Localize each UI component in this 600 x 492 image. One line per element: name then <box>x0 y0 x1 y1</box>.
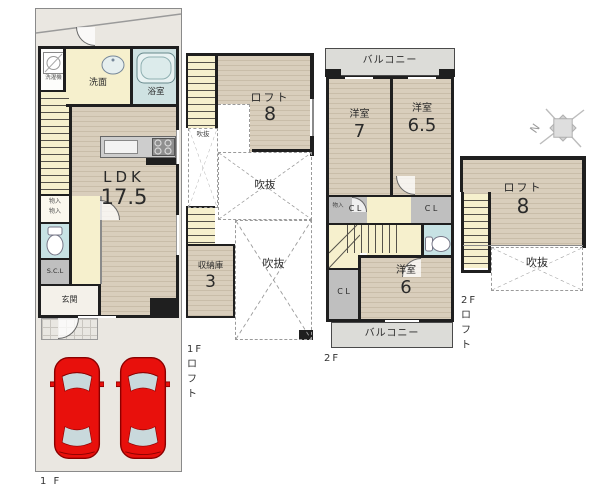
void-area <box>188 128 218 208</box>
window <box>408 77 436 79</box>
west6-size: 6 <box>361 279 451 298</box>
ldk-size: 17.5 <box>72 186 176 208</box>
plan-label-2f-loft: 2Fロフト <box>461 295 477 351</box>
storage-label: 収納庫 <box>188 262 233 271</box>
balcony-bottom-label: バルコニー <box>331 329 453 340</box>
kitchen-sink <box>104 140 138 154</box>
plan-label-2f: 2F <box>324 353 340 364</box>
storage-size: 3 <box>188 274 233 292</box>
wall <box>41 222 69 224</box>
plan-1f: 洗面 洗濯機 浴室 LDK 17.5 物入 物入 S.C.L 玄関 1 F <box>0 0 200 492</box>
west7-size: 7 <box>329 123 390 142</box>
ldk-label: LDK <box>72 170 176 186</box>
toilet-icon <box>425 234 451 254</box>
bathtub-icon <box>136 52 176 84</box>
washer-label: 洗濯機 <box>41 76 66 82</box>
loft1-label: ロフト <box>230 92 310 104</box>
void-label: 吹抜 <box>491 257 583 269</box>
sink-icon <box>100 54 127 76</box>
window <box>345 77 373 79</box>
wall <box>186 316 235 318</box>
west65-size: 6.5 <box>393 117 451 136</box>
wall <box>329 195 451 197</box>
wall <box>186 244 233 246</box>
bath-label: 浴室 <box>133 88 179 97</box>
hall-1f <box>72 196 100 284</box>
wall <box>98 284 101 318</box>
wall <box>361 255 451 258</box>
loft2-size: 8 <box>463 196 583 217</box>
balcony-top-label: バルコニー <box>325 56 455 67</box>
void-label: 吹抜 <box>188 131 218 138</box>
closet-label: 物入 <box>41 199 69 205</box>
washroom-label: 洗面 <box>66 79 130 88</box>
void-label: 吹抜 <box>235 258 312 270</box>
wall <box>186 53 188 128</box>
loft1-size: 8 <box>230 105 310 125</box>
wall <box>329 268 358 270</box>
loft2-label: ロフト <box>463 182 583 194</box>
stairs-loft1-upper <box>188 56 215 128</box>
wall <box>460 156 586 160</box>
plan-label-1f-loft: 1Fロフト <box>187 344 203 400</box>
wall <box>38 46 41 318</box>
wall <box>41 284 101 286</box>
floor-plan-sheet: 洗面 洗濯機 浴室 LDK 17.5 物入 物入 S.C.L 玄関 1 F <box>0 0 600 492</box>
car-icon <box>50 352 104 464</box>
wall <box>41 258 69 260</box>
window <box>312 99 314 136</box>
scl-label: S.C.L <box>41 268 69 275</box>
wall <box>451 76 454 322</box>
wall <box>176 46 179 318</box>
stairs-1f <box>41 92 69 196</box>
ldk-step-block <box>150 298 179 315</box>
stairs-loft1-lower <box>188 208 215 244</box>
wall <box>66 104 179 107</box>
wall <box>461 270 491 273</box>
void-area <box>235 220 312 340</box>
wall <box>310 53 314 99</box>
plan-2f-loft: N ロフト 8 吹抜 2Fロフト <box>0 0 1 1</box>
cl-label: C L <box>329 288 358 296</box>
approach-line <box>36 9 181 45</box>
cl-label: C L <box>411 205 451 213</box>
entrance-label: 玄関 <box>41 296 98 304</box>
kitchen-half-wall <box>146 158 179 165</box>
toilet-icon <box>45 226 65 256</box>
wall <box>41 90 66 92</box>
west6-label: 洋室 <box>361 266 451 277</box>
west65-label: 洋室 <box>393 104 451 115</box>
wall <box>41 194 69 196</box>
hall-2f <box>367 197 411 223</box>
west7-label: 洋室 <box>329 110 390 121</box>
stove-icon <box>152 138 175 156</box>
car-icon <box>116 352 170 464</box>
window <box>176 215 179 255</box>
compass-icon <box>536 104 588 152</box>
wall <box>186 53 312 56</box>
void-area <box>491 247 583 291</box>
washing-machine-icon <box>43 52 64 74</box>
window <box>176 130 179 164</box>
closet-label: 物入 <box>41 209 69 215</box>
wall <box>38 46 179 49</box>
wall <box>390 79 393 195</box>
wall <box>215 56 218 128</box>
wall <box>421 225 424 257</box>
floor-edge-line <box>463 245 583 246</box>
plan-label-1f: 1 F <box>40 476 61 487</box>
cl-label: C L <box>344 205 366 213</box>
void-label: 吹抜 <box>218 180 312 191</box>
stairs-fan-lines <box>329 225 360 268</box>
wall <box>329 223 451 225</box>
